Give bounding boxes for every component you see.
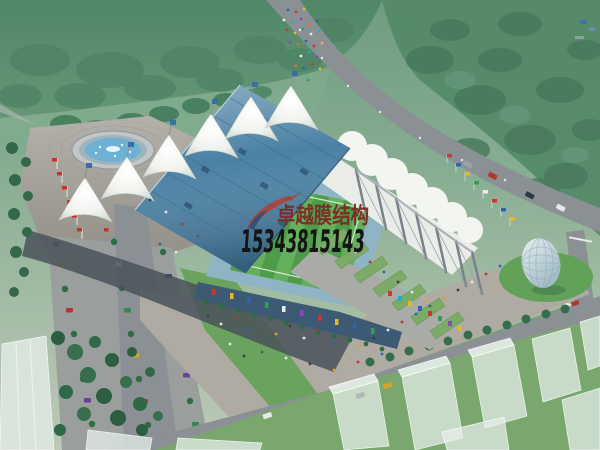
watermark-phone-number: 15343815143: [239, 224, 366, 260]
fountain: [72, 131, 154, 169]
stadium-rendering: 卓越膜结构 15343815143: [0, 0, 600, 450]
scene-svg: 卓越膜结构 15343815143: [0, 0, 600, 450]
